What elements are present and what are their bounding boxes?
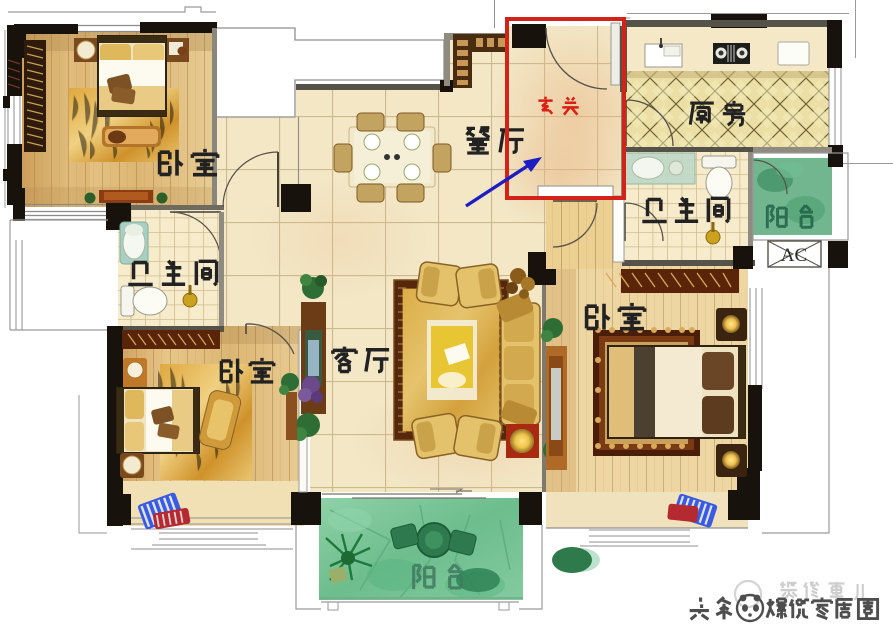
- svg-text:AC: AC: [781, 245, 807, 266]
